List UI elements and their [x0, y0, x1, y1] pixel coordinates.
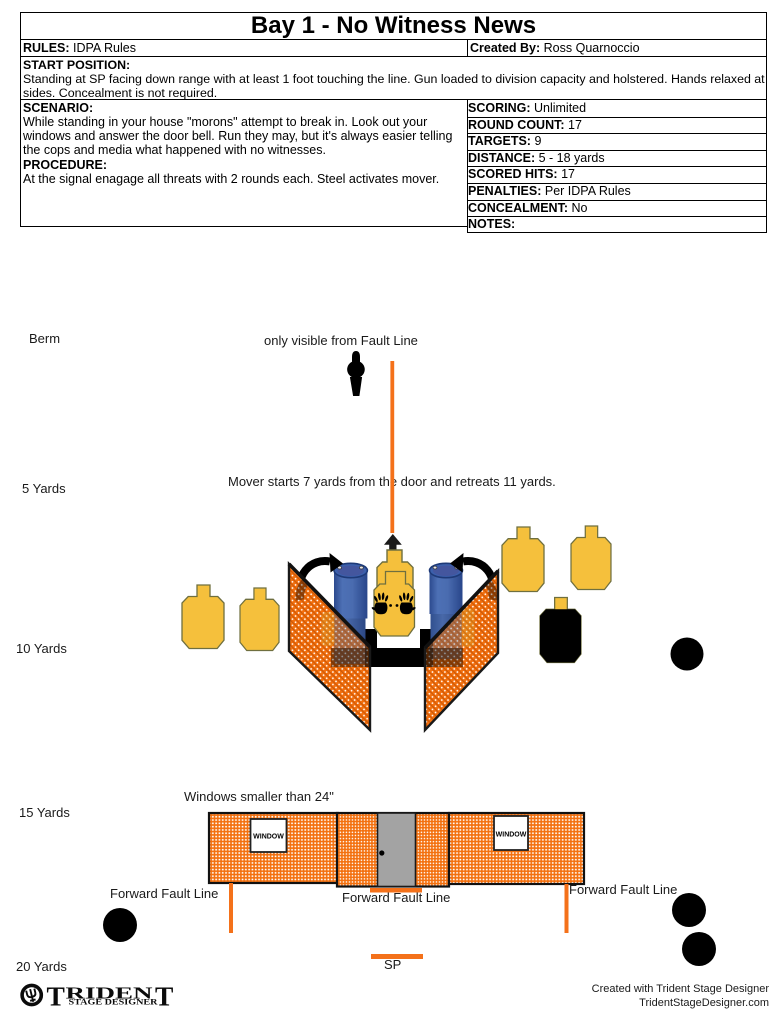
svg-text:T: T	[155, 981, 173, 1012]
svg-text:WINDOW: WINDOW	[496, 832, 527, 839]
svg-text:WINDOW: WINDOW	[253, 834, 284, 841]
svg-text:STAGE DESIGNER: STAGE DESIGNER	[69, 998, 158, 1007]
svg-text:T: T	[47, 981, 65, 1012]
